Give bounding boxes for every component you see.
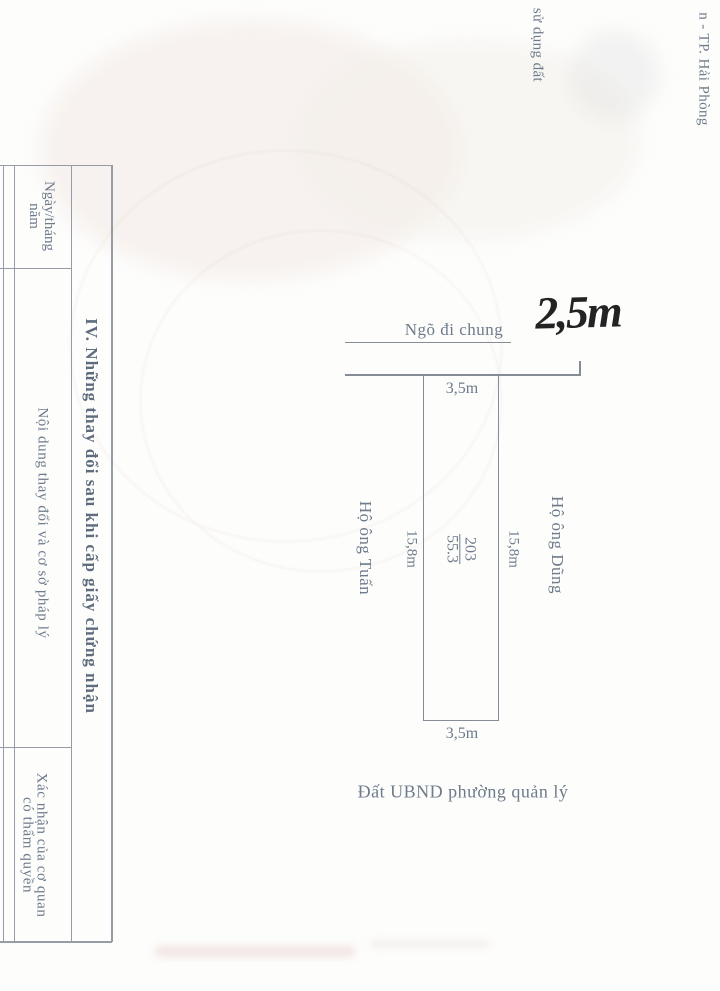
watermark-blob — [300, 40, 640, 240]
watermark-blob — [570, 30, 660, 120]
bottom-adjacency-label: Đất UBND phường quản lý — [358, 782, 569, 803]
dimension-left: 15,8m — [403, 530, 420, 568]
table-header-content: Nội dung thay đổi và cơ sở pháp lý — [34, 407, 51, 638]
dimension-top: 3,5m — [446, 380, 478, 398]
parcel-number-area: 203 55.3 — [443, 534, 478, 564]
table-rule — [71, 165, 72, 942]
table-rule — [0, 268, 71, 269]
parcel-area: 55.3 — [443, 534, 460, 564]
dimension-bottom: 3,5m — [446, 725, 478, 743]
neighbor-left-label: Hộ ông Tuấn — [355, 501, 375, 595]
alley-underline — [345, 342, 511, 343]
table-header-date-line1: Ngày/tháng — [41, 181, 56, 251]
dimension-right: 15,8m — [505, 530, 522, 568]
table-rule — [3, 165, 4, 942]
table-rule — [0, 165, 112, 166]
table-rule — [0, 747, 71, 748]
ghost-text-smudge — [370, 940, 490, 948]
table-header-date: Ngày/tháng năm — [26, 181, 56, 251]
table-rule — [0, 941, 112, 943]
certificate-scan: sử dụng đất n - TP. Hải Phòng IV. Những … — [0, 0, 720, 991]
table-rule — [111, 165, 113, 942]
neighbor-right-label: Hộ ông Dũng — [547, 496, 567, 594]
table-header-confirm-line2: có thẩm quyền — [20, 773, 34, 918]
boundary-end-tick — [579, 361, 581, 374]
table-header-confirm-line1: Xác nhận của cơ quan — [34, 773, 48, 918]
ghost-text-smudge — [155, 946, 355, 957]
handwritten-width: 2,5m — [535, 284, 622, 339]
section-iv-title: IV. Những thay đổi sau khi cấp giấy chứn… — [81, 318, 101, 714]
edge-text-city: n - TP. Hải Phòng — [695, 12, 712, 126]
table-header-date-line2: năm — [26, 181, 41, 251]
edge-text-land-use: sử dụng đất — [529, 8, 546, 82]
table-header-confirm: Xác nhận của cơ quan có thẩm quyền — [20, 773, 49, 918]
watermark-blob — [40, 20, 460, 280]
parcel-number: 203 — [460, 534, 478, 564]
alley-label: Ngõ đi chung — [405, 320, 504, 340]
table-rule — [14, 165, 15, 942]
